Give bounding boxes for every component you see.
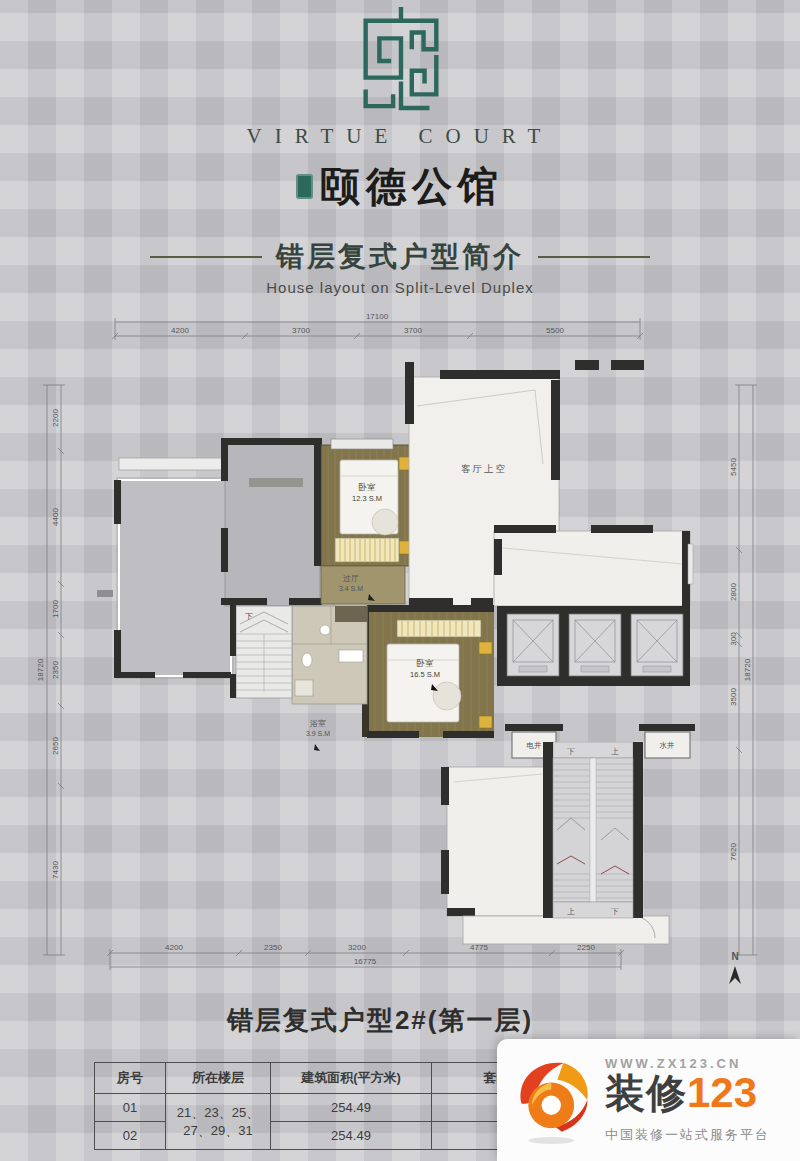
dim-bottom-total: 16775 — [354, 957, 377, 966]
dim-right-seg: 2800 — [729, 583, 738, 601]
cell-build-area: 254.49 — [271, 1094, 432, 1122]
cell-floors: 21、23、25、 27、29、31 — [166, 1094, 271, 1150]
title-rule-left — [150, 256, 262, 258]
cell-room-no: 02 — [95, 1122, 166, 1150]
bath-label: 浴室 — [310, 719, 326, 728]
living-void-label: 客厅上空 — [461, 463, 507, 474]
bedroom-2-area: 16.5 S.M — [410, 670, 440, 679]
dim-top-seg: 5500 — [546, 326, 564, 335]
compass-mark-icon — [314, 744, 320, 751]
dim-bottom-seg: 2350 — [264, 943, 282, 952]
elevator-shaft — [569, 614, 621, 676]
brand-header: VIRTUE COURT 颐德公馆 — [0, 6, 800, 214]
bedroom-2: 卧室 16.5 S.M — [362, 605, 494, 738]
watermark-brand-cn: 装修 — [605, 1071, 687, 1115]
elevator-shaft — [631, 614, 683, 676]
window-band — [331, 439, 393, 449]
nightstand — [479, 716, 492, 728]
brand-name-cn: 颐德公馆 — [320, 159, 504, 214]
dim-left-seg: 1700 — [51, 600, 60, 618]
section-title-en: House layout on Split-Level Duplex — [0, 279, 800, 296]
bedroom-1-label: 卧室 — [359, 482, 377, 492]
shelf — [249, 478, 303, 487]
sink — [320, 625, 330, 635]
title-rule-right — [538, 256, 650, 258]
dim-top-seg: 3700 — [404, 326, 422, 335]
plan-title: 错层复式户型2#(第一层) — [0, 1003, 760, 1038]
upper-room — [221, 438, 322, 606]
dim-top-seg: 4200 — [171, 326, 189, 335]
hall-area: 3.4 S.M — [339, 585, 363, 592]
brand-seal-icon — [296, 174, 313, 199]
stair-down-label: 下 — [567, 747, 575, 756]
lobby — [441, 767, 547, 916]
dim-left-seg: 2350 — [51, 661, 60, 679]
dim-left-seg: 2200 — [51, 409, 60, 427]
hall-label: 过厅 — [343, 574, 359, 583]
bath-area: 3.9 S.M — [306, 730, 330, 737]
watermark-brand: 装修123 — [605, 1071, 770, 1124]
dim-left-seg: 2650 — [51, 737, 60, 755]
watermark-brand-num: 123 — [687, 1069, 757, 1116]
dim-right-total: 18720 — [743, 658, 752, 681]
nightstand — [479, 642, 492, 654]
header-room-no: 房号 — [95, 1063, 166, 1094]
brand-name-row: 颐德公馆 — [0, 159, 800, 214]
zx123-swirl-logo-icon — [509, 1054, 597, 1146]
terrace-stub — [97, 590, 113, 597]
stair-left: 下 — [230, 604, 292, 698]
floor-plan: 17100 4200 3700 3700 5500 4200 2350 3200… — [35, 312, 765, 992]
dim-top-total: 17100 — [366, 312, 389, 321]
bedroom-1-area: 12.3 S.M — [352, 494, 382, 503]
dim-right-seg: 7620 — [729, 843, 738, 861]
header-floors: 所在楼层 — [166, 1063, 271, 1094]
bedroom-2-label: 卧室 — [417, 658, 435, 668]
section-header: 错层复式户型简介 House layout on Split-Level Dup… — [0, 238, 800, 296]
north-arrow-icon: N — [729, 951, 741, 984]
stair-down-label: 下 — [245, 612, 253, 621]
entrance-porch — [463, 916, 669, 944]
stair-up-label: 上 — [611, 747, 619, 756]
brochure-page: VIRTUE COURT 颐德公馆 错层复式户型简介 House layout … — [0, 0, 800, 1161]
stair-down-label: 下 — [611, 907, 619, 916]
shower — [295, 680, 313, 696]
cell-floors-line1: 21、23、25、 — [172, 1104, 264, 1122]
zx123-watermark: WWW.ZX123.CN 装修123 中国装修一站式服务平台 — [497, 1039, 800, 1161]
tub — [339, 650, 363, 662]
dim-bottom-seg: 4200 — [165, 943, 183, 952]
cell-room-no: 01 — [95, 1094, 166, 1122]
stair-up-label: 上 — [567, 907, 575, 916]
elec-shaft-label: 电井 — [527, 741, 543, 750]
dim-right-seg: 300 — [729, 632, 738, 646]
right-room — [494, 525, 693, 606]
water-shaft-label: 水井 — [659, 741, 676, 750]
stairwell: 下 上 上 下 — [543, 742, 643, 918]
dim-right-seg: 3500 — [729, 688, 738, 706]
bathroom: 浴室 3.9 S.M — [292, 606, 367, 751]
dim-top-seg: 3700 — [292, 326, 310, 335]
section-title-cn: 错层复式户型简介 — [276, 238, 524, 276]
bedroom-1: 卧室 12.3 S.M — [314, 439, 420, 566]
toilet — [302, 653, 312, 667]
dim-left-total: 18720 — [36, 658, 45, 681]
virtue-court-maze-logo-icon — [336, 6, 464, 112]
dim-right-seg: 5450 — [729, 458, 738, 476]
elevator-shaft — [507, 614, 559, 676]
cell-build-area: 254.49 — [271, 1122, 432, 1150]
elevator-bank — [497, 606, 690, 686]
brand-name-en: VIRTUE COURT — [0, 124, 800, 149]
north-label: N — [731, 951, 738, 962]
dim-left-seg: 4400 — [51, 508, 60, 526]
header-build-area: 建筑面积(平方米) — [271, 1063, 432, 1094]
watermark-tagline: 中国装修一站式服务平台 — [605, 1126, 770, 1144]
watermark-text-block: WWW.ZX123.CN 装修123 中国装修一站式服务平台 — [605, 1056, 770, 1144]
dim-left-seg: 7430 — [51, 861, 60, 879]
hall: 过厅 3.4 S.M — [321, 566, 405, 604]
dim-bottom-seg: 3200 — [348, 943, 366, 952]
cell-floors-line2: 27、29、31 — [172, 1122, 264, 1140]
